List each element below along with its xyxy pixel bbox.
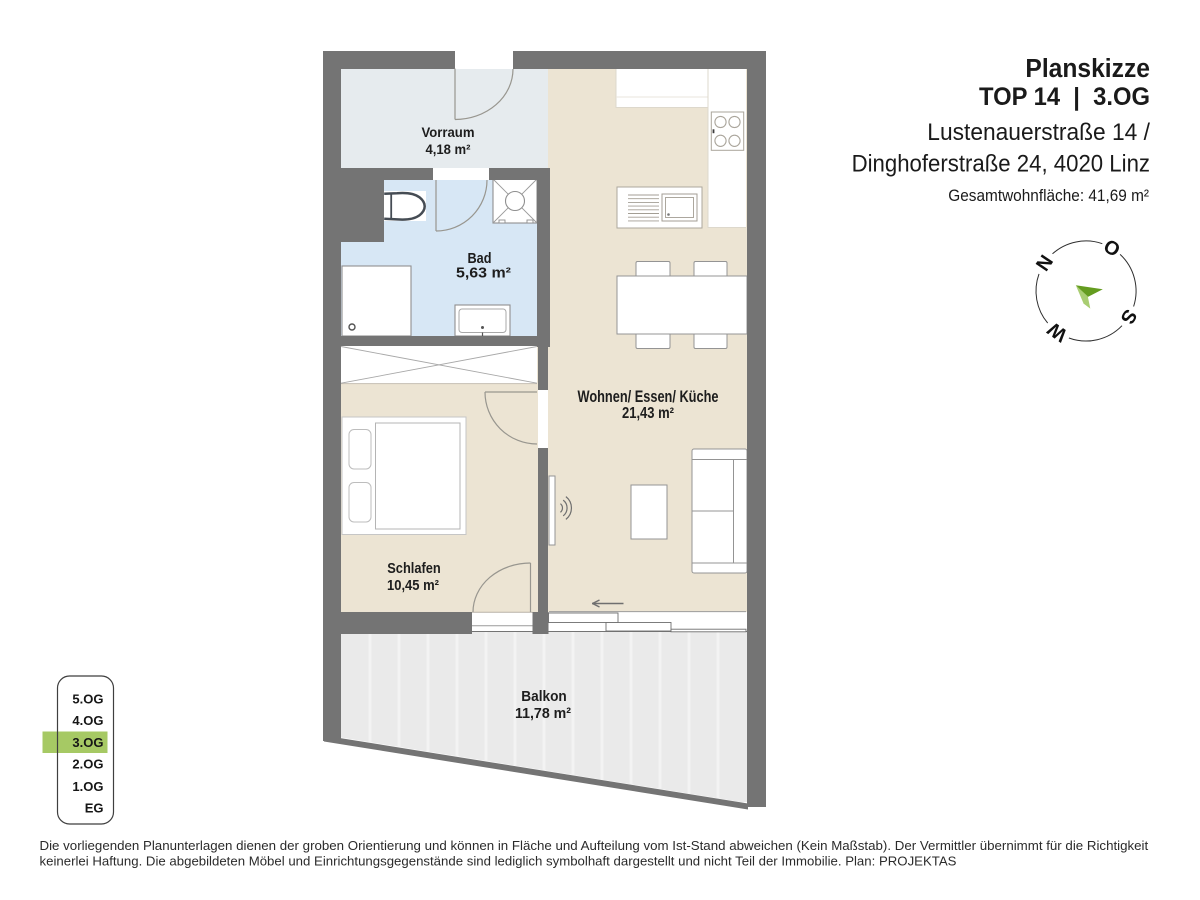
svg-text:Lustenauerstraße 14 /: Lustenauerstraße 14 / [927, 119, 1150, 146]
svg-text:Planskizze: Planskizze [1025, 55, 1150, 83]
svg-text:10,45 m²: 10,45 m² [387, 578, 439, 594]
svg-text:Dinghoferstraße 24, 4020 Linz: Dinghoferstraße 24, 4020 Linz [852, 150, 1150, 177]
svg-text:Wohnen/ Essen/ Küche: Wohnen/ Essen/ Küche [578, 388, 719, 406]
svg-text:11,78 m²: 11,78 m² [515, 705, 571, 722]
svg-text:O: O [1099, 235, 1123, 262]
svg-text:4.OG: 4.OG [72, 713, 103, 728]
svg-text:Schlafen: Schlafen [387, 561, 441, 577]
svg-text:W: W [1043, 317, 1071, 346]
svg-text:N: N [1032, 251, 1058, 275]
svg-text:5,63 m²: 5,63 m² [456, 266, 511, 282]
svg-text:2.OG: 2.OG [72, 757, 103, 772]
svg-text:EG: EG [85, 801, 104, 816]
svg-text:1.OG: 1.OG [72, 779, 103, 794]
svg-text:4,18 m²: 4,18 m² [426, 141, 471, 157]
svg-text:Gesamtwohnfläche: 41,69 m²: Gesamtwohnfläche: 41,69 m² [948, 186, 1149, 205]
svg-text:Vorraum: Vorraum [422, 125, 475, 140]
svg-text:5.OG: 5.OG [72, 692, 103, 707]
svg-text:21,43 m²: 21,43 m² [622, 405, 674, 422]
svg-text:Balkon: Balkon [521, 688, 567, 705]
svg-text:keinerlei Haftung. Die abgebil: keinerlei Haftung. Die abgebildeten Möbe… [40, 854, 957, 868]
svg-text:TOP 14 | 3.OG: TOP 14 | 3.OG [979, 83, 1150, 111]
svg-text:Die vorliegenden Planunterlage: Die vorliegenden Planunterlagen dienen d… [40, 839, 1149, 853]
svg-text:S: S [1116, 305, 1142, 327]
svg-text:Bad: Bad [468, 250, 492, 267]
svg-text:3.OG: 3.OG [72, 735, 103, 750]
